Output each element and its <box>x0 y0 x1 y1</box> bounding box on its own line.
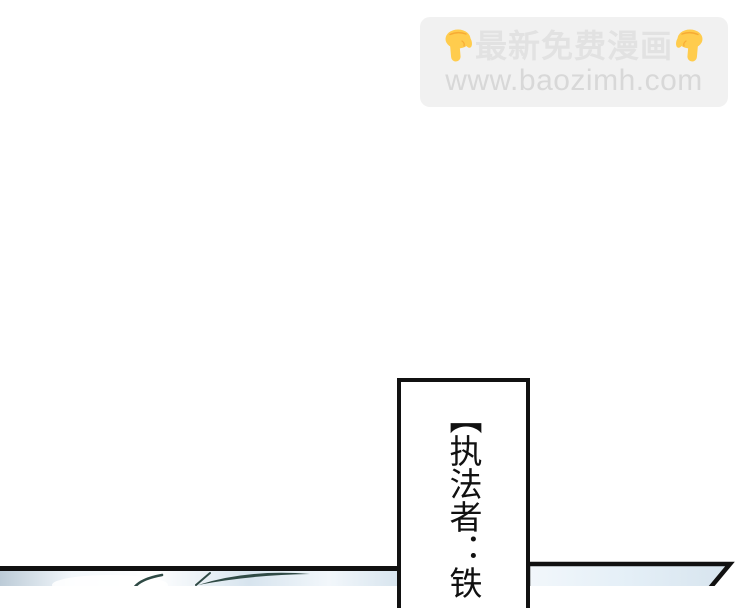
panel-slanted-frame <box>528 564 730 586</box>
pointing-down-emoji-icon <box>441 29 473 63</box>
watermark-badge: 最新免费漫画 www.baozimh.com <box>420 17 728 107</box>
watermark-text: 最新免费漫画 <box>475 30 673 62</box>
panel-bottom-right <box>528 558 750 586</box>
dialogue-box: 【执法者：铁 <box>397 378 530 608</box>
dialogue-text: 【执法者：铁 <box>447 382 480 608</box>
pointing-down-emoji-icon <box>675 29 707 63</box>
watermark-title-row: 最新免费漫画 <box>441 29 707 63</box>
panel-bottom-left <box>0 562 401 586</box>
watermark-url: www.baozimh.com <box>445 66 703 96</box>
